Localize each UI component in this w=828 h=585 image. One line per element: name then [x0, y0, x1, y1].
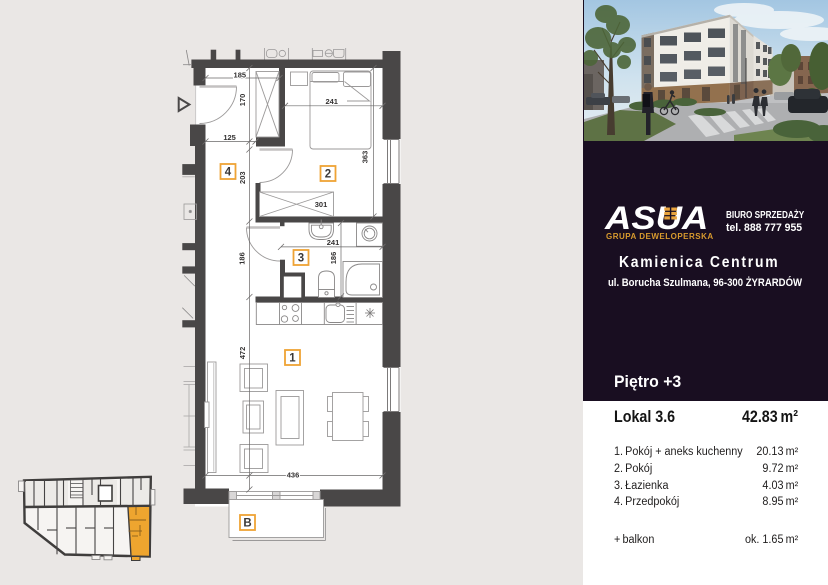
svg-text:472: 472 [238, 347, 247, 360]
svg-text:125: 125 [223, 133, 236, 142]
svg-text:241: 241 [325, 97, 338, 106]
svg-text:4: 4 [225, 167, 232, 179]
svg-text:186: 186 [238, 252, 247, 265]
svg-text:170: 170 [238, 94, 247, 107]
svg-text:203: 203 [238, 171, 247, 184]
svg-text:2: 2 [325, 169, 331, 181]
svg-text:436: 436 [287, 470, 300, 479]
svg-text:363: 363 [360, 151, 369, 164]
svg-text:3: 3 [298, 253, 304, 265]
svg-text:1: 1 [289, 353, 296, 365]
svg-text:301: 301 [315, 200, 328, 209]
svg-text:B: B [243, 518, 251, 530]
svg-text:241: 241 [327, 238, 340, 247]
svg-text:185: 185 [234, 70, 247, 79]
svg-text:186: 186 [329, 252, 338, 265]
